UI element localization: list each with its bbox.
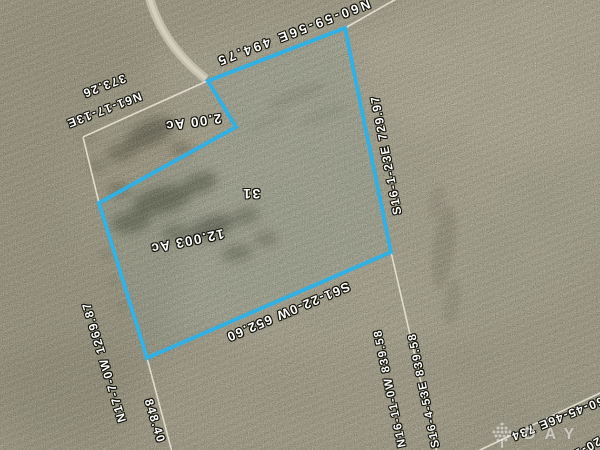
label-lot-number: 31 xyxy=(242,187,261,201)
watermark: DAY xyxy=(487,420,583,450)
aerial-basemap xyxy=(0,0,600,450)
tree-logo-icon xyxy=(487,420,517,450)
watermark-text: DAY xyxy=(524,426,583,444)
aerial-map-viewport[interactable]: N60-59-56E 494.75 373.26 N61-17-13E 2.00… xyxy=(0,0,600,450)
